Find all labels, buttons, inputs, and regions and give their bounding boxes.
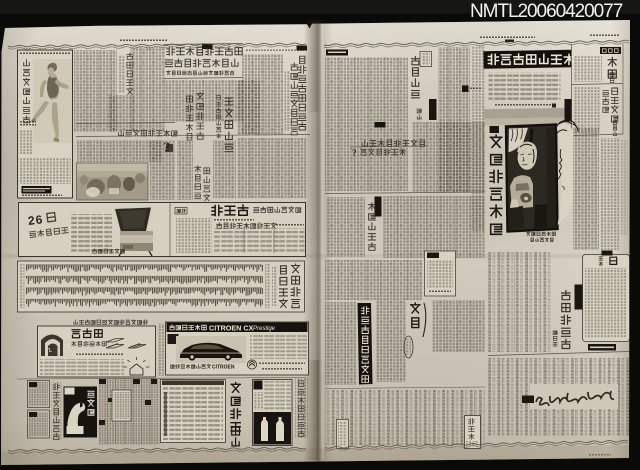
svg-text:26: 26 bbox=[27, 212, 44, 228]
svg-text:TL: TL bbox=[46, 348, 52, 354]
svg-text:Prestige: Prestige bbox=[253, 326, 276, 332]
svg-text:CITROEN CX: CITROEN CX bbox=[209, 324, 254, 333]
svg-text:?: ? bbox=[352, 148, 357, 158]
svg-text:CITROEN: CITROEN bbox=[212, 365, 235, 371]
